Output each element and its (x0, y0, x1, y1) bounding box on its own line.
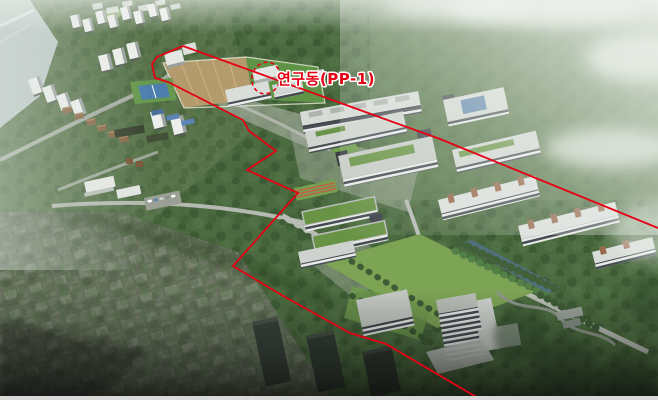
mist-gradient (340, 0, 658, 235)
left-haze (0, 0, 150, 270)
research-building-label: 연구동(PP-1) (277, 70, 375, 88)
bottom-strip (0, 396, 658, 400)
aerial-scene: 연구동(PP-1) (0, 0, 658, 400)
campus-aerial-rendering: 연구동(PP-1) (0, 0, 658, 400)
